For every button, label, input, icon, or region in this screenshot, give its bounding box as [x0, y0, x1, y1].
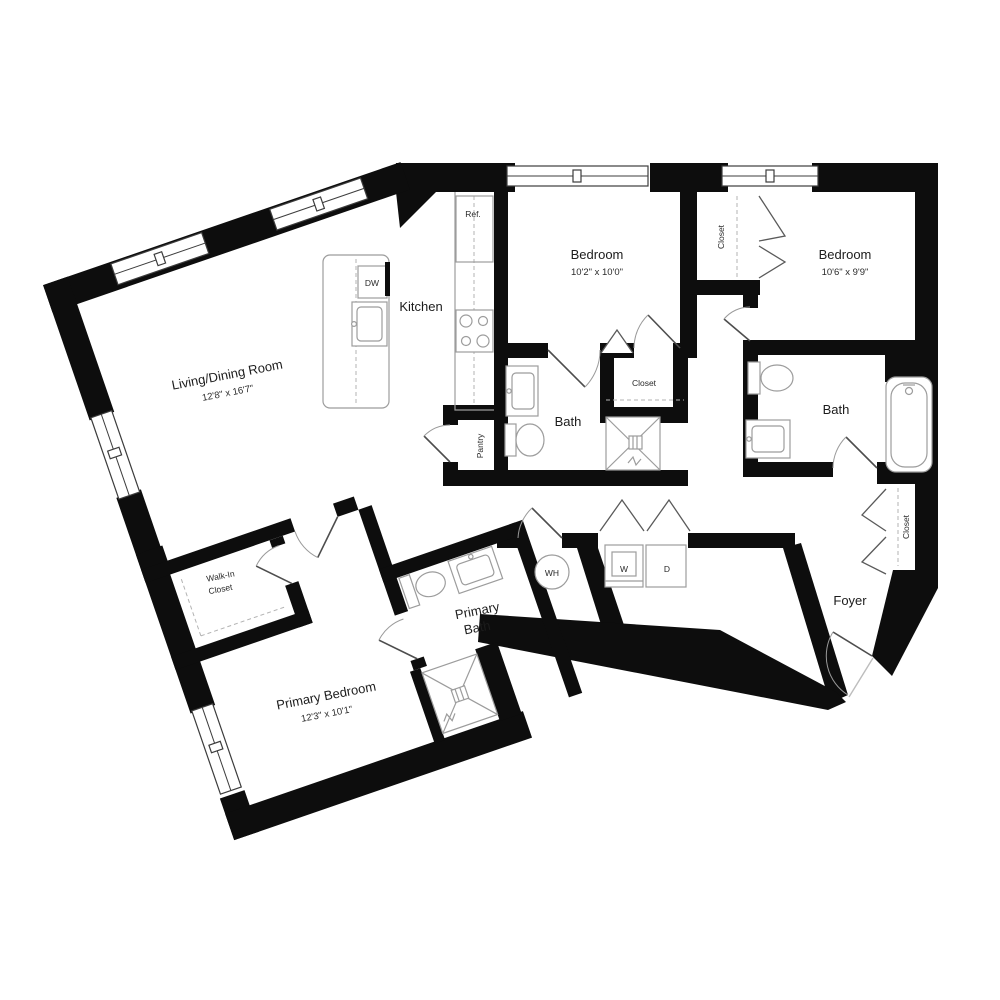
bifold-hall-closet [759, 196, 785, 278]
label-pantry: Pantry [475, 433, 485, 458]
label-foyer-closet: Closet [901, 514, 911, 539]
label-washer: W [620, 564, 628, 574]
wall-segment [915, 163, 938, 575]
sink-bath1 [506, 366, 538, 416]
label-bedroom2-dims: 10'6" x 9'9" [822, 267, 869, 278]
kitchen-counter [455, 192, 494, 410]
wall-bedroom1-south [508, 343, 548, 358]
label-bath1: Bath [555, 414, 582, 429]
bathtub [886, 377, 932, 472]
wall-kitchen-bedroom1 [494, 192, 508, 352]
window-primary-bedroom [192, 704, 241, 794]
label-living-dining-dims: 12'8" x 16'7" [201, 383, 254, 404]
wall-bedroom2-south [743, 340, 918, 355]
window-living-top-right [270, 178, 368, 230]
rotated-wing [43, 162, 592, 840]
label-hall-closet: Closet [716, 224, 726, 249]
wall-bedroom2-nook [743, 280, 758, 308]
label-bedroom1-closet: Closet [632, 378, 657, 388]
wall-pantry-west [443, 405, 458, 425]
label-primary-bedroom-dims: 12'3" x 10'1" [300, 704, 353, 725]
door-bath1 [548, 350, 600, 387]
label-bedroom1: Bedroom [571, 247, 624, 262]
label-water-heater: WH [545, 568, 559, 578]
wall-segment [650, 163, 728, 192]
label-bath2: Bath [823, 402, 850, 417]
wall-laundry-bottom-band [478, 614, 846, 710]
label-foyer: Foyer [833, 593, 867, 608]
sink-bath2 [746, 420, 790, 458]
door-bath2 [833, 437, 877, 468]
door-pantry [424, 425, 450, 462]
window-bedroom1 [507, 166, 648, 186]
window-bedroom2 [722, 166, 818, 186]
shower-bath1 [606, 417, 660, 470]
wall-laundry-top [688, 533, 795, 548]
label-walk-in-closet-2: Closet [208, 582, 234, 597]
kitchen-island [323, 255, 390, 408]
wall-hall-closet-left [680, 192, 697, 358]
wall-pbath-left [358, 505, 408, 615]
door-bedroom2 [724, 307, 750, 341]
bifold-foyer-closet [862, 489, 886, 574]
bifold-laundry [600, 500, 690, 531]
wall-foyer-southeast [872, 570, 938, 676]
label-refrigerator: Ref. [465, 209, 481, 219]
label-primary-bedroom: Primary Bedroom [275, 679, 377, 713]
label-bedroom1-dims: 10'2" x 10'0" [571, 267, 623, 278]
window-living-top-left [111, 233, 209, 285]
stove [456, 310, 493, 352]
door-primary-bedroom [295, 517, 348, 562]
bifold-closet-bedroom1 [601, 330, 633, 353]
wall-pbath-left [410, 656, 426, 670]
kitchen-sink [352, 302, 387, 346]
wall-segment [396, 163, 515, 192]
wall-bath2-bottom [743, 462, 833, 477]
floor-plan-page: Living/Dining Room 12'8" x 16'7" Kitchen… [0, 0, 1000, 1000]
label-dryer: D [664, 564, 670, 574]
label-kitchen: Kitchen [399, 299, 442, 314]
wall-exterior-left [116, 489, 215, 713]
toilet-bath1 [505, 424, 544, 456]
wall-bed1closet-right [673, 343, 688, 423]
floor-plan-svg: Living/Dining Room 12'8" x 16'7" Kitchen… [0, 0, 1000, 1000]
wall-suite-top [333, 496, 358, 516]
wall-seam-wedge [396, 192, 436, 228]
wall-corridor-top [443, 470, 688, 486]
wall-laundry-top [562, 533, 598, 548]
label-dishwasher: DW [365, 278, 379, 288]
toilet-bath2 [748, 362, 793, 394]
label-bedroom2: Bedroom [819, 247, 872, 262]
wall-exterior-bottom [225, 711, 532, 840]
window-living-left [91, 411, 140, 499]
